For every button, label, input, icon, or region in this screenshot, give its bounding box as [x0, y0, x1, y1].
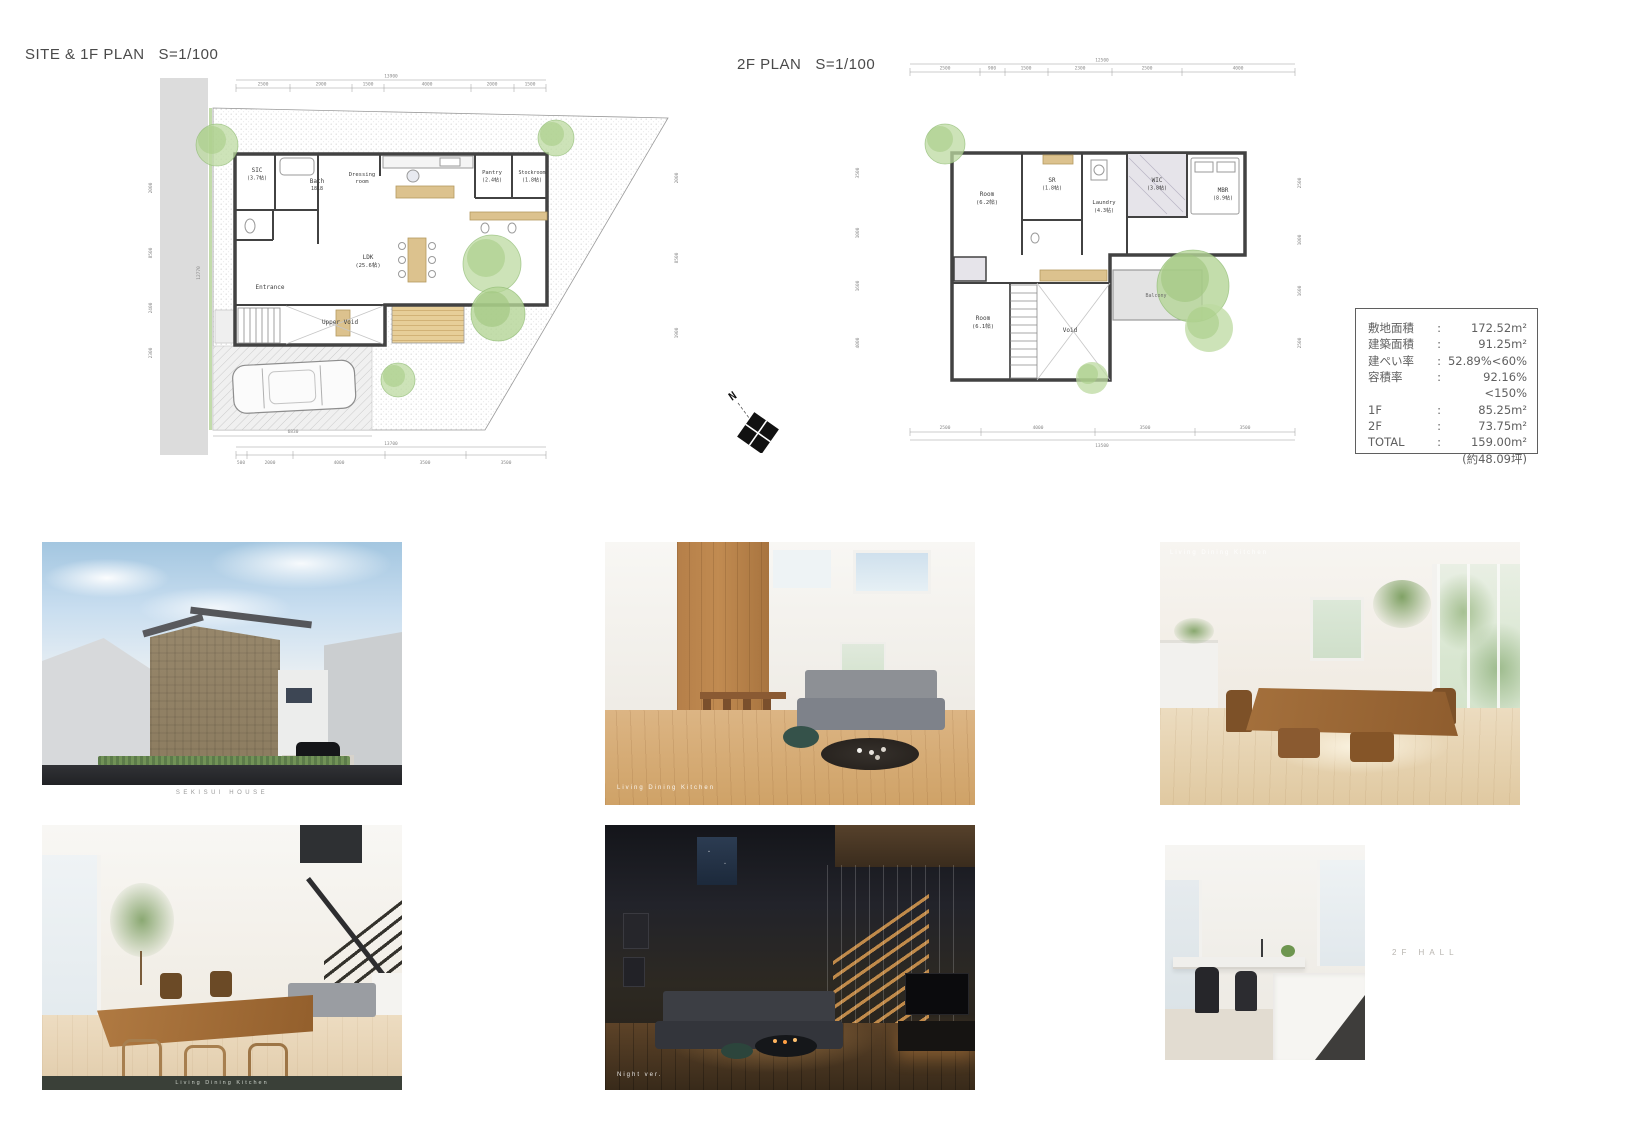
dining-chair-front-2: [1350, 732, 1394, 762]
closet: [954, 257, 986, 281]
dim-label: 1000: [855, 227, 861, 238]
room-label-dressing-1: Dressing: [349, 172, 376, 178]
room-label-bath: Bath: [310, 178, 325, 185]
entrance-porch: [215, 310, 235, 343]
area-value: 52.89%<60%: [1444, 353, 1527, 369]
dim-total-top: 13900: [384, 74, 398, 80]
dim-label: 900: [988, 66, 996, 72]
render-exterior: [42, 542, 402, 785]
room-label-sic: SIC: [252, 167, 263, 174]
room-label-pantry: Pantry: [482, 170, 503, 176]
render-ldk-wood-wall: Living Dining Kitchen: [605, 542, 975, 805]
area-value: 91.25m²: [1444, 336, 1527, 352]
room-size-sr: (1.8帖): [1042, 185, 1062, 192]
kitchen-counter: [1160, 640, 1218, 713]
area-label: 敷地面積: [1368, 320, 1434, 336]
area-sep: :: [1434, 320, 1444, 336]
table-row: 建築面積 : 91.25m²: [1368, 336, 1527, 352]
dim-label: 2300: [1075, 66, 1086, 72]
counter-plant: [1174, 618, 1214, 644]
table-row: 1F : 85.25m²: [1368, 402, 1527, 418]
dim-label: 3500: [855, 167, 861, 178]
room-size-stockroom: (1.8帖): [522, 177, 542, 184]
render-night: Night ver.: [605, 825, 975, 1090]
dining-table-far: [700, 692, 786, 699]
room-size-pantry: (2.4帖): [482, 177, 502, 184]
room-size-bath: 1818: [311, 186, 323, 192]
dim-label: 2500: [1142, 66, 1153, 72]
sofa-seat: [797, 698, 945, 730]
area-label: 建築面積: [1368, 336, 1434, 352]
room-label-balcony: Balcony: [1145, 293, 1166, 299]
dim-label: 4000: [422, 82, 433, 88]
area-value: 159.00m²: [1444, 434, 1527, 450]
dim-deck-width: 6830: [288, 429, 299, 435]
room-size-ldk: (25.6帖): [355, 261, 380, 269]
room-label-void: Void: [1063, 327, 1078, 334]
area-sep: :: [1434, 402, 1444, 418]
render-dining2-caption: Living Dining Kitchen: [42, 1080, 402, 1086]
room-size-room-b: (6.1帖): [972, 322, 994, 330]
dim-label: 2000: [674, 172, 680, 183]
dim-label: 8500: [674, 252, 680, 263]
tv-console: [898, 1021, 975, 1051]
dim-label: 3500: [501, 460, 512, 466]
car: [232, 360, 356, 414]
hanging-plant: [1373, 580, 1431, 628]
floor-plan-2f: Room (6.2帖) SR (1.8帖) Laundry (4.3帖) WIC…: [845, 48, 1315, 458]
area-sep: :: [1434, 434, 1444, 450]
dim-label: 8500: [148, 247, 154, 258]
tv-screen: [905, 973, 969, 1015]
window-right: [1317, 860, 1365, 966]
room-label-entrance: Entrance: [256, 284, 285, 291]
dim-label: 2500: [1297, 337, 1303, 348]
facade-window: [286, 688, 312, 703]
area-value: 172.52m²: [1444, 320, 1527, 336]
room-size-wic: (3.8帖): [1147, 185, 1167, 192]
room-label-laundry: Laundry: [1092, 200, 1116, 206]
dim-label: 3500: [1140, 425, 1151, 431]
dining-chair-front-1: [1278, 728, 1320, 758]
area-value: 85.25m²: [1444, 402, 1527, 418]
room-label-sr: SR: [1048, 177, 1056, 184]
render-ldk-caption: Living Dining Kitchen: [617, 785, 715, 791]
room-label-room-b: Room: [976, 315, 991, 322]
dining-chair-back-2: [210, 971, 232, 997]
table-row: 建ぺい率 : 52.89%<60%: [1368, 353, 1527, 369]
table-row: 敷地面積 : 172.52m²: [1368, 320, 1527, 336]
dim-label: 1600: [1297, 285, 1303, 296]
indoor-tree-trunk: [140, 951, 142, 985]
dim-label: 4000: [855, 337, 861, 348]
table-row: 2F : 73.75m²: [1368, 418, 1527, 434]
north-arrow: N: [718, 383, 782, 453]
dining-chair-back-1: [160, 973, 182, 999]
dim-total-bottom: 13700: [384, 441, 398, 447]
area-label: 建ぺい率: [1368, 353, 1434, 369]
dim-label: 3500: [1240, 425, 1251, 431]
room-label-wic: WIC: [1152, 177, 1163, 184]
area-label: 容積率: [1368, 369, 1434, 402]
render-2f-hall: [1165, 845, 1365, 1060]
room-label-upper-void: Upper Void: [322, 319, 359, 326]
table-row: TOTAL : 159.00m²: [1368, 434, 1527, 450]
loft-opening: [300, 825, 362, 863]
render-exterior-caption: SEKISUI HOUSE: [42, 790, 402, 796]
dim-label: 1900: [674, 327, 680, 338]
dim-label: 2000: [487, 82, 498, 88]
dim-label: 1600: [855, 280, 861, 291]
room-label-room-a: Room: [980, 191, 995, 198]
room-label-ldk: LDK: [363, 254, 374, 261]
floor-plan-1f: SIC (3.7帖) Bath 1818 Dressing room Pantr…: [140, 48, 700, 468]
dim-label: 3500: [420, 460, 431, 466]
room-label-mbr: MBR: [1218, 187, 1229, 194]
wood-ceiling: [835, 825, 975, 867]
dim-label: 1500: [363, 82, 374, 88]
study-desk: [1173, 957, 1305, 969]
dim-label: 1500: [525, 82, 536, 88]
area-sep: :: [1434, 336, 1444, 352]
dim-label: 2500: [1297, 177, 1303, 188]
render-dining-window: Living Dining Kitchen: [1160, 542, 1520, 805]
asphalt-road: [42, 765, 402, 785]
area-value: 92.16%<150%: [1444, 369, 1527, 402]
render-dining-caption: Living Dining Kitchen: [1170, 550, 1268, 556]
dim-label: 4000: [1233, 66, 1244, 72]
dim-label: 2500: [940, 66, 951, 72]
desk-lamp: [1261, 939, 1263, 957]
dim-label: 1000: [1297, 234, 1303, 245]
wood-deck: [392, 305, 464, 343]
dim-label: 2000: [265, 460, 276, 466]
side-table-green: [783, 726, 819, 748]
render-dining-stairs: Living Dining Kitchen: [42, 825, 402, 1090]
side-table-green: [721, 1043, 753, 1059]
area-table: 敷地面積 : 172.52m² 建築面積 : 91.25m² 建ぺい率 : 52…: [1355, 308, 1538, 454]
area-sep: :: [1434, 353, 1444, 369]
render-2f-hall-label: 2F HALL: [1392, 948, 1459, 957]
dim-label: 4000: [334, 460, 345, 466]
area-sep: :: [1434, 418, 1444, 434]
candle-lights: [773, 1039, 777, 1043]
area-note: (約48.09坪): [1368, 451, 1527, 467]
area-label: 1F: [1368, 402, 1434, 418]
desk-chair-1: [1195, 967, 1219, 1013]
desk-plant: [1281, 945, 1295, 957]
clerestory-window: [853, 550, 931, 594]
room-size-mbr: (8.9帖): [1213, 195, 1233, 202]
tableware: [857, 748, 862, 753]
dim-label: 2400: [148, 302, 154, 313]
table-row: 容積率 : 92.16%<150%: [1368, 369, 1527, 402]
window-middle: [1310, 597, 1364, 661]
wood-accent-wall: [677, 542, 769, 712]
wall-art-1: [623, 913, 649, 949]
area-value: 73.75m²: [1444, 418, 1527, 434]
north-label: N: [726, 389, 739, 403]
window-left: [42, 855, 101, 1027]
area-label: TOTAL: [1368, 434, 1434, 450]
render-night-caption: Night ver.: [617, 1072, 662, 1078]
area-label: 2F: [1368, 418, 1434, 434]
dim-label: 500: [237, 460, 245, 466]
wall-art-2: [623, 957, 645, 987]
indoor-tree: [110, 883, 174, 957]
dim-label: 2500: [258, 82, 269, 88]
dim-label: 1500: [1021, 66, 1032, 72]
dim-label: 2000: [148, 182, 154, 193]
coffee-table: [821, 738, 919, 770]
room-size-laundry: (4.3帖): [1094, 207, 1114, 214]
dim-label: 2300: [148, 347, 154, 358]
room-size-room-a: (6.2帖): [976, 198, 998, 206]
room-label-dressing-2: room: [355, 179, 369, 185]
area-sep: :: [1434, 369, 1444, 402]
clerestory-window-left: [773, 550, 831, 588]
desk-chair-2: [1235, 971, 1257, 1011]
dim-label: 2500: [940, 425, 951, 431]
dim-total-bottom-2f: 13500: [1095, 443, 1109, 449]
main-house-facade: [150, 626, 280, 766]
dim-label: 12770: [196, 266, 202, 280]
presentation-sheet: SITE & 1F PLAN S=1/100 2F PLAN S=1/100: [0, 0, 1625, 1125]
dim-label: 4000: [1033, 425, 1044, 431]
night-window: [697, 837, 737, 885]
dim-total-top-2f: 12500: [1095, 58, 1109, 64]
room-label-stockroom: Stockroom: [518, 170, 545, 176]
coffee-table: [755, 1035, 817, 1057]
room-size-sic: (3.7帖): [247, 175, 267, 182]
dim-label: 2900: [316, 82, 327, 88]
